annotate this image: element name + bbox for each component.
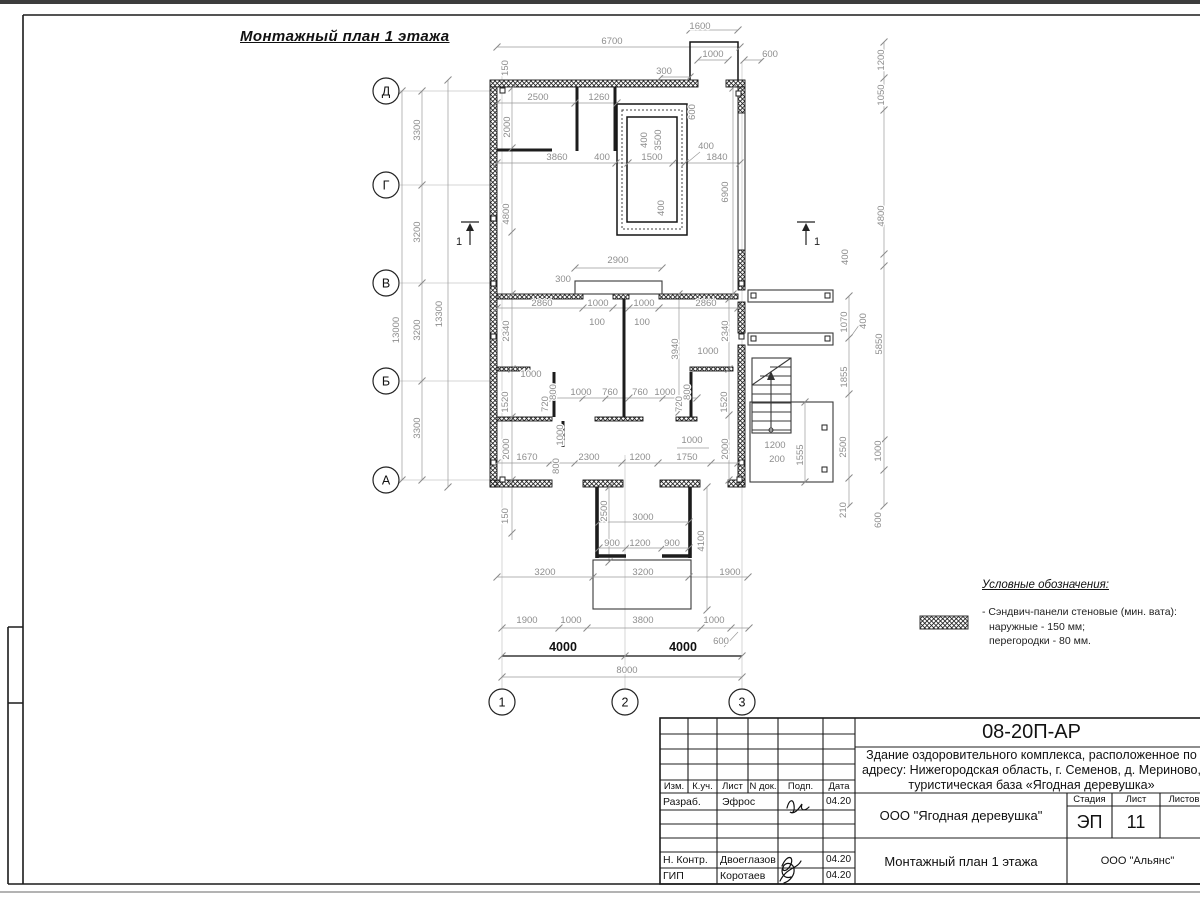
col-data: Дата (823, 780, 855, 793)
org2-cell: ООО "Альянс" (1067, 838, 1200, 884)
dim-label: 6900 (720, 181, 731, 202)
dim-label: 600 (762, 49, 778, 60)
date-razrab: 04.20 (826, 796, 851, 807)
dim-label: 3940 (670, 338, 681, 359)
dim-label: 4100 (696, 530, 707, 551)
name-nkontr: Двоеглазов (720, 854, 776, 866)
dim-label: 1000 (560, 615, 581, 626)
viewport-bottom-edge (0, 891, 1200, 893)
dim-label: 600 (687, 104, 698, 120)
dim-label: 1200 (764, 440, 785, 451)
dim-label: 400 (840, 249, 851, 265)
legend-title: Условные обозначения: (982, 579, 1109, 591)
dim-label: 1000 (697, 346, 718, 357)
dim-label: 1750 (676, 452, 697, 463)
dim-label: 760 (602, 387, 618, 398)
row-axis-label: А (382, 474, 391, 488)
dim-label: 1855 (839, 366, 850, 387)
dim-label: 900 (664, 538, 680, 549)
dim-label: 400 (594, 152, 610, 163)
interior-walls (497, 294, 738, 421)
dim-label: 8000 (616, 665, 637, 676)
drawing-sheet: 1600670010006003001502500126020006004003… (0, 0, 1200, 900)
dim-label: 1000 (702, 49, 723, 60)
dim-label: 2340 (720, 320, 731, 341)
dim-label: 1200 (876, 49, 887, 70)
drawing-title-cell: Монтажный план 1 этажа (855, 838, 1067, 884)
org1-cell: ООО "Ягодная деревушка" (855, 793, 1067, 838)
row-axis-label: В (382, 277, 390, 291)
dim-label: 1520 (500, 391, 511, 412)
dim-label: 1070 (839, 311, 850, 332)
col-izm: Изм. (660, 780, 688, 793)
dim-label: 1000 (570, 387, 591, 398)
sheet-label: Лист (1112, 793, 1160, 806)
dim-label: 3200 (632, 567, 653, 578)
dim-label: 1500 (641, 152, 662, 163)
dim-label: 3800 (632, 615, 653, 626)
section-arrowhead (802, 223, 810, 231)
col-ndok: N док. (748, 780, 778, 793)
dim-label: 4800 (501, 203, 512, 224)
legend-item-line2: наружные - 150 мм; (989, 621, 1085, 633)
dim-label: 400 (639, 132, 650, 148)
col-podp: Подп. (778, 780, 823, 793)
dim-label: 3000 (632, 512, 653, 523)
dim-label: 1000 (633, 298, 654, 309)
stair-block (748, 290, 833, 482)
section-number: 1 (814, 236, 820, 248)
legend-item-line1: - Сэндвич-панели стеновые (мин. вата): (982, 606, 1177, 618)
drawing-title-heading: Монтажный план 1 этажа (240, 28, 450, 45)
dim-label: 1050 (876, 84, 887, 105)
legend-item-line3: перегородки - 80 мм. (989, 635, 1091, 647)
staircase (752, 358, 791, 433)
dim-label: 210 (838, 502, 849, 518)
dim-label: 2000 (720, 438, 731, 459)
role-gip: ГИП (663, 870, 684, 882)
dim-label: 100 (589, 317, 605, 328)
dim-label: 2860 (531, 298, 552, 309)
dim-label: 600 (873, 512, 884, 528)
dim-label: 1900 (719, 567, 740, 578)
dim-label: 4000 (549, 640, 577, 654)
name-razrab: Эфрос (722, 796, 755, 808)
dim-label: 3300 (412, 119, 423, 140)
col-kuch: К.уч. (688, 780, 717, 793)
dim-label: 1000 (587, 298, 608, 309)
dim-label: 2500 (599, 500, 610, 521)
dim-label: 720 (540, 396, 551, 412)
dim-label: 720 (674, 396, 685, 412)
role-nkontr: Н. Контр. (663, 854, 708, 866)
dim-label: 900 (604, 538, 620, 549)
dim-label: 150 (500, 60, 511, 76)
doc-number: 08-20П-АР (855, 718, 1200, 747)
dim-label: 400 (656, 200, 667, 216)
dim-label: 1000 (520, 369, 541, 380)
dim-label: 200 (769, 454, 785, 465)
signature-2 (780, 858, 801, 884)
dim-label: 3200 (412, 319, 423, 340)
dim-label: 300 (555, 274, 571, 285)
dim-label: 2500 (527, 92, 548, 103)
project-description: Здание оздоровительного комплекса, распо… (855, 748, 1200, 793)
dim-label: 800 (551, 458, 562, 474)
row-axis-label: Б (382, 375, 390, 389)
dim-label: 150 (500, 508, 511, 524)
dim-label: 3300 (412, 417, 423, 438)
legend-hatch-sample (920, 616, 968, 629)
dim-label: 1000 (681, 435, 702, 446)
role-razrab: Разраб. (663, 796, 701, 808)
dim-label: 2300 (578, 452, 599, 463)
section-number: 1 (456, 236, 462, 248)
lintel-outline (575, 281, 662, 294)
dim-label: 400 (858, 313, 869, 329)
dim-label: 3200 (412, 221, 423, 242)
dim-label: 600 (713, 636, 729, 647)
stove-room (617, 104, 687, 235)
row-axis-label: Д (382, 85, 391, 99)
dim-label: 1000 (703, 615, 724, 626)
dim-label: 1520 (719, 391, 730, 412)
stage-label: Стадия (1067, 793, 1112, 806)
dim-label: 1000 (654, 387, 675, 398)
dim-label: 2860 (695, 298, 716, 309)
stage-value: ЭП (1067, 806, 1112, 838)
dim-label: 3500 (653, 129, 664, 150)
dim-label: 1200 (629, 452, 650, 463)
dim-label: 1600 (689, 21, 710, 32)
dim-ticks (399, 27, 888, 681)
dim-label: 100 (634, 317, 650, 328)
sheets-label: Листов (1160, 793, 1200, 806)
dim-label: 1200 (629, 538, 650, 549)
col-axis-label: 2 (622, 696, 629, 710)
dim-label: 760 (632, 387, 648, 398)
col-axis-label: 1 (499, 696, 506, 710)
project-line3: туристическая база «Ягодная деревушка» (855, 778, 1200, 793)
date-gip: 04.20 (826, 870, 851, 881)
dim-label: 13300 (434, 301, 445, 327)
section-arrowhead (466, 223, 474, 231)
dim-label: 2900 (607, 255, 628, 266)
project-line2: адресу: Нижегородская область, г. Семено… (855, 763, 1200, 778)
dim-label: 2000 (502, 116, 513, 137)
dim-label: 6700 (601, 36, 622, 47)
dim-label: 400 (698, 141, 714, 152)
dimension-lines (402, 30, 884, 677)
dim-label: 300 (656, 66, 672, 77)
col-axis-label: 3 (739, 696, 746, 710)
date-nkontr: 04.20 (826, 854, 851, 865)
dim-label: 1000 (555, 424, 566, 445)
dim-label: 13000 (391, 317, 402, 343)
dim-label: 2500 (838, 436, 849, 457)
dim-label: 1000 (873, 440, 884, 461)
name-gip: Коротаев (720, 870, 765, 882)
row-axis-label: Г (383, 179, 390, 193)
dim-label: 4000 (669, 640, 697, 654)
dim-label: 4800 (876, 205, 887, 226)
dim-labels: 1600670010006003001502500126020006004003… (391, 21, 887, 676)
dim-label: 1840 (706, 152, 727, 163)
dim-label: 3860 (546, 152, 567, 163)
dim-label: 1260 (588, 92, 609, 103)
sheet-number: 11 (1112, 806, 1160, 838)
signature-1 (787, 801, 809, 813)
dim-label: 3200 (534, 567, 555, 578)
project-line1: Здание оздоровительного комплекса, распо… (855, 748, 1200, 763)
col-list: Лист (717, 780, 748, 793)
dim-label: 5850 (874, 333, 885, 354)
dim-label: 1670 (516, 452, 537, 463)
dim-label: 2340 (501, 320, 512, 341)
dim-label: 1555 (795, 444, 806, 465)
dim-label: 1900 (516, 615, 537, 626)
dim-label: 2000 (501, 438, 512, 459)
viewport-top-edge (0, 0, 1200, 4)
